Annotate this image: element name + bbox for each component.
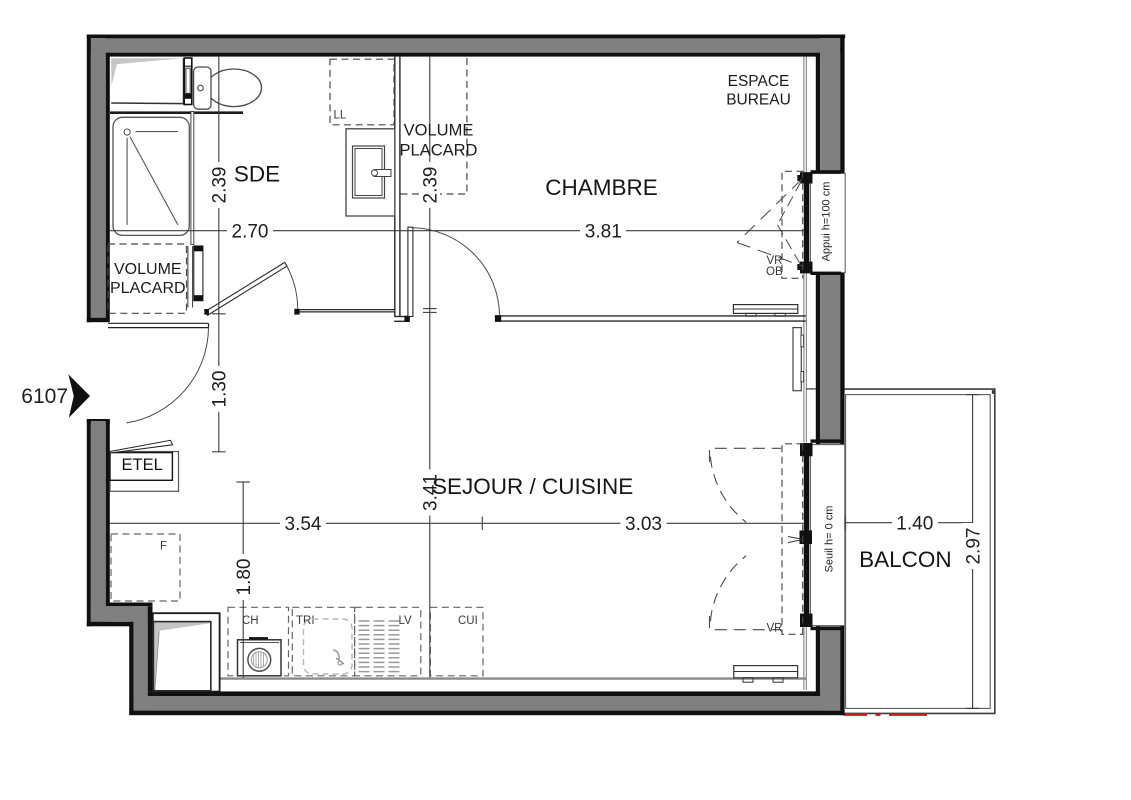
svg-text:ETEL: ETEL [122,456,163,474]
svg-text:OB: OB [766,266,783,278]
svg-text:VOLUME: VOLUME [404,122,474,140]
svg-text:3.81: 3.81 [585,222,622,243]
svg-text:F: F [160,541,167,553]
svg-text:SEJOUR / CUISINE: SEJOUR / CUISINE [432,474,633,499]
svg-text:2.39: 2.39 [210,167,231,204]
svg-text:6107: 6107 [21,385,68,408]
svg-text:VR: VR [767,623,783,635]
svg-text:SDE: SDE [234,162,280,187]
svg-text:Appui h=100 cm: Appui h=100 cm [821,182,833,262]
svg-text:TRI: TRI [296,615,315,627]
svg-text:PLACARD: PLACARD [110,280,186,297]
svg-text:1.30: 1.30 [210,371,231,408]
svg-text:BUREAU: BUREAU [726,91,791,108]
svg-text:Seuil h= 0 cm: Seuil h= 0 cm [824,506,836,573]
svg-text:2.97: 2.97 [964,528,985,565]
svg-text:CHAMBRE: CHAMBRE [545,175,658,200]
svg-text:LV: LV [399,615,413,627]
svg-text:3.03: 3.03 [625,514,662,535]
svg-text:2.70: 2.70 [232,222,269,243]
svg-text:1.40: 1.40 [896,514,933,535]
svg-text:CH: CH [242,615,259,627]
svg-text:3.54: 3.54 [285,514,322,535]
svg-text:CUI: CUI [458,615,478,627]
svg-text:PLACARD: PLACARD [400,141,478,159]
svg-text:ESPACE: ESPACE [728,73,790,90]
svg-text:LL: LL [334,110,347,122]
svg-text:1.80: 1.80 [234,559,255,596]
svg-text:2.39: 2.39 [421,167,442,204]
svg-text:BALCON: BALCON [859,547,952,572]
svg-text:VOLUME: VOLUME [114,261,182,278]
